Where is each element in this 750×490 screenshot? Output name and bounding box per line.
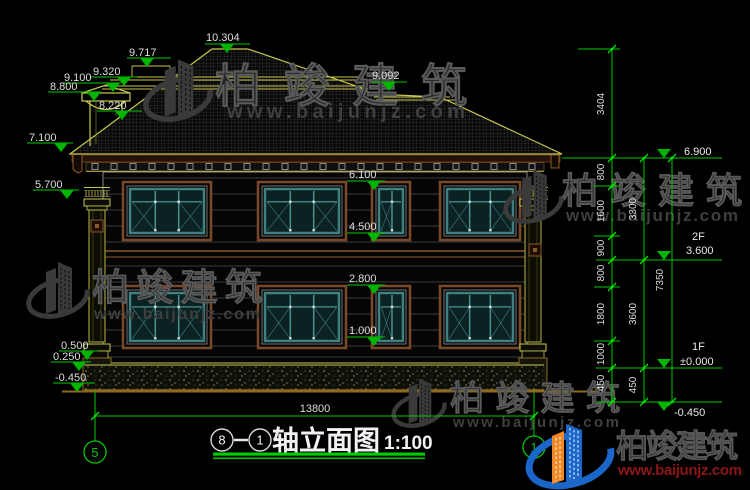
dentil (529, 164, 535, 170)
window-handle-dot (177, 337, 179, 339)
level-ridge: 10.304 (206, 32, 240, 44)
window-handle-dot (289, 229, 291, 231)
dentil (244, 164, 250, 170)
window-handle-dot (312, 337, 314, 339)
dentil (377, 164, 383, 170)
bottom-dim-text: 13800 (300, 403, 331, 415)
dim-node (643, 157, 645, 159)
dim-node (611, 185, 613, 187)
elevation-drawing: 柏竣建筑 www.baijunjz.com 柏竣建筑 www.baijunjz.… (0, 0, 750, 490)
gutter-drop-right (551, 155, 559, 168)
dim-node (611, 401, 613, 403)
window-sash (447, 189, 513, 233)
chain-dim-text: 800 (596, 264, 607, 281)
dim-chain-labels: 3404800160090080018001000450330036004507… (596, 92, 666, 393)
axis-bubble-left-num: 5 (91, 445, 98, 460)
dentil (225, 164, 231, 170)
dim-node (611, 286, 613, 288)
dim-node (643, 401, 645, 403)
logo-tower-orange (552, 431, 564, 484)
cad-elevation-screenshot: 柏竣建筑 www.baijunjz.com 柏竣建筑 www.baijunjz.… (0, 0, 750, 490)
level-text: 5.700 (35, 179, 63, 191)
dim-node (611, 235, 613, 237)
watermark-logo-icon (24, 262, 91, 323)
window-handle-dot (177, 201, 179, 203)
chain-dim-text: 800 (596, 163, 607, 180)
window-sash (130, 189, 204, 233)
dim-node (611, 340, 613, 342)
dentil (149, 164, 155, 170)
watermark-brand: 柏竣建筑 (562, 170, 742, 211)
dentil (491, 164, 497, 170)
window-handle-dot (391, 201, 393, 203)
level-triangle (60, 190, 74, 199)
watermark-url: www.baijunjz.com (565, 206, 738, 225)
level-ground: -0.450 (674, 407, 705, 419)
level-text: 2.800 (349, 273, 377, 285)
window-handle-dot (391, 229, 393, 231)
window-handle-dot (468, 306, 470, 308)
brand-logo-url: www.baijunjz.com (617, 462, 742, 479)
level-triangle (106, 83, 120, 92)
window (258, 182, 346, 240)
title-underline-thin (213, 458, 425, 460)
level-eave: 6.900 (684, 146, 712, 158)
level-marker-left: 7.100 (27, 132, 73, 152)
level-floor1: ±0.000 (680, 356, 714, 368)
window-handle-dot (154, 337, 156, 339)
window-handle-dot (391, 337, 393, 339)
dim-node (643, 259, 645, 261)
chain-dim-text: 3300 (628, 197, 639, 220)
window-handle-dot (177, 229, 179, 231)
chain-dim-text: 3404 (596, 92, 607, 115)
title-name: 轴立面图 (272, 425, 380, 456)
dentil (301, 164, 307, 170)
title-scale: 1:100 (384, 433, 433, 454)
dentil (396, 164, 402, 170)
level-text: 8.220 (99, 100, 127, 112)
title-block: 8 1 轴立面图 1:100 (211, 425, 433, 459)
dentil (415, 164, 421, 170)
dim-node (643, 367, 645, 369)
level-triangle (54, 143, 68, 152)
level-text: -0.450 (55, 372, 86, 384)
window-handle-dot (468, 337, 470, 339)
dentil (339, 164, 345, 170)
level-text: 9.320 (93, 66, 121, 78)
title-underline-thick (213, 453, 425, 456)
dim-node (611, 157, 613, 159)
level-marker-left: 9.717 (127, 47, 171, 67)
chain-total-text: 7350 (655, 268, 666, 291)
window-sash (265, 189, 339, 233)
floor1-label: 1F (692, 341, 705, 353)
level-text: 1.000 (349, 325, 377, 337)
dim-node (611, 48, 613, 50)
title-axis-end: 1 (256, 433, 263, 448)
window-handle-dot (391, 306, 393, 308)
dentil (111, 164, 117, 170)
dim-node (671, 401, 673, 403)
window-handle-dot (289, 201, 291, 203)
eave-fascia (72, 155, 560, 173)
window-handle-dot (468, 229, 470, 231)
level-text: 0.250 (53, 351, 81, 363)
window-handle-dot (289, 337, 291, 339)
chain-dim-text: 1600 (596, 199, 607, 222)
window (440, 286, 520, 348)
level-right-ridge: 9.092 (372, 70, 400, 82)
dentil (510, 164, 516, 170)
level-marker-left: 8.800 (48, 81, 101, 101)
window (372, 182, 410, 240)
window-handle-dot (312, 306, 314, 308)
window-handle-dot (289, 306, 291, 308)
level-text: 7.100 (29, 132, 57, 144)
level-triangle (117, 77, 131, 86)
window-handle-dot (489, 201, 491, 203)
window-handle-dot (154, 229, 156, 231)
dim-node (671, 157, 673, 159)
level-floor2: 3.600 (686, 245, 714, 257)
window-sash (447, 293, 513, 341)
watermark-url: www.baijunjz.com (452, 414, 619, 431)
window-handle-dot (489, 337, 491, 339)
chain-dim-text: 1800 (596, 302, 607, 325)
chain-dim-text: 450 (628, 376, 639, 393)
dentil (263, 164, 269, 170)
chain-dim-text: 1000 (596, 342, 607, 365)
dentil (92, 164, 98, 170)
window (258, 286, 346, 348)
dentil (472, 164, 478, 170)
axis-bubble-left: 5 (84, 441, 106, 463)
window-handle-dot (489, 229, 491, 231)
brand-logo: 柏竣建筑 www.baijunjz.com (523, 424, 742, 490)
level-text: 6.100 (349, 169, 377, 181)
dentil (320, 164, 326, 170)
window-handle-dot (312, 201, 314, 203)
dentil (206, 164, 212, 170)
level-text: 9.717 (129, 47, 157, 59)
dentil (282, 164, 288, 170)
floor2-label: 2F (692, 231, 705, 243)
window-handle-dot (312, 229, 314, 231)
dentil (434, 164, 440, 170)
dentil (187, 164, 193, 170)
dim-node (611, 259, 613, 261)
chain-dim-text: 450 (596, 374, 607, 391)
dim-node (611, 367, 613, 369)
dentil (130, 164, 136, 170)
brand-logo-text: 柏竣建筑 (616, 428, 738, 464)
chain-dim-text: 3600 (628, 302, 639, 325)
level-text: 4.500 (349, 221, 377, 233)
level-text: 8.800 (50, 81, 78, 93)
window-handle-dot (468, 201, 470, 203)
window-handle-dot (154, 201, 156, 203)
gutter-drop-left (73, 155, 82, 173)
dentil (168, 164, 174, 170)
dentil (453, 164, 459, 170)
window-sash (265, 293, 339, 341)
level-marker-left: 5.700 (33, 179, 79, 199)
window-handle-dot (489, 306, 491, 308)
window (123, 182, 211, 240)
title-axis-start: 8 (218, 433, 225, 448)
chain-dim-text: 900 (596, 239, 607, 256)
